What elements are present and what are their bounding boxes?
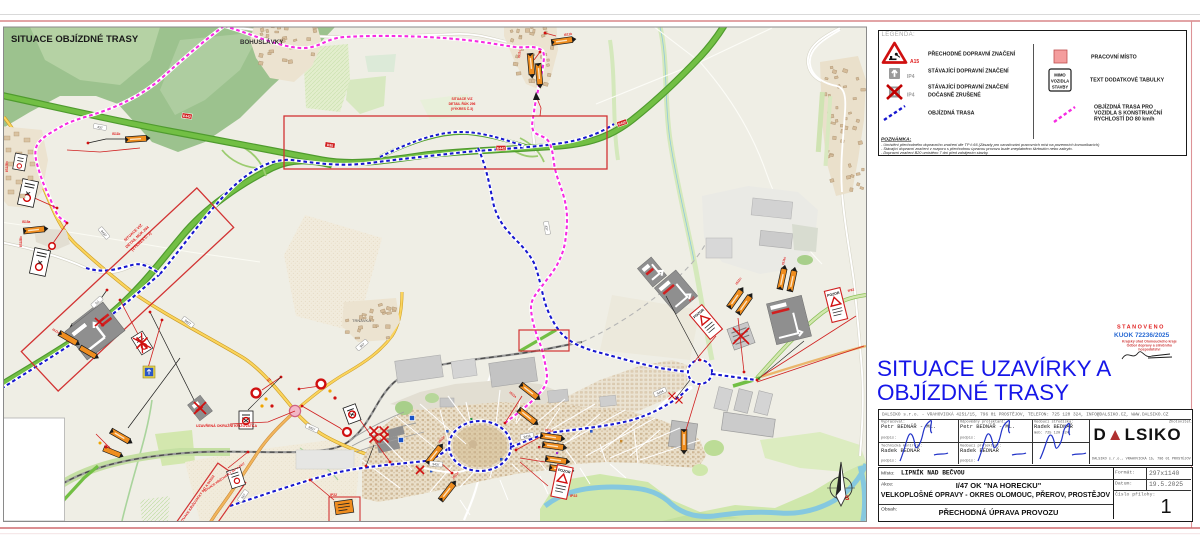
svg-text:TRNÁVKA: TRNÁVKA bbox=[352, 318, 371, 323]
svg-text:IP22: IP22 bbox=[570, 494, 577, 498]
svg-text:9437: 9437 bbox=[432, 462, 440, 467]
svg-text:IP4: IP4 bbox=[907, 74, 915, 80]
svg-text:S: S bbox=[845, 495, 850, 502]
svg-text:MIMO: MIMO bbox=[1054, 72, 1066, 77]
svg-text:(VÝKRES Č.3): (VÝKRES Č.3) bbox=[451, 106, 473, 111]
svg-text:SITUACE VIZ: SITUACE VIZ bbox=[451, 97, 472, 101]
svg-text:IP22: IP22 bbox=[330, 493, 337, 497]
svg-text:IS15a: IS15a bbox=[22, 220, 31, 224]
svg-text:DETAIL ŘÚK 296: DETAIL ŘÚK 296 bbox=[449, 101, 476, 106]
svg-text:IS11b: IS11b bbox=[112, 132, 120, 136]
svg-text:IS15b: IS15b bbox=[18, 236, 23, 247]
svg-text:A15: A15 bbox=[910, 59, 919, 65]
svg-text:IP4: IP4 bbox=[907, 92, 915, 98]
svg-text:SITUACE OBJÍZDNÉ TRASY: SITUACE OBJÍZDNÉ TRASY bbox=[11, 34, 139, 45]
svg-text:E442: E442 bbox=[497, 146, 505, 150]
svg-text:BOHUSLÁVKY: BOHUSLÁVKY bbox=[240, 39, 284, 46]
svg-text:IS11c: IS11c bbox=[517, 49, 522, 58]
svg-text:STAVBY: STAVBY bbox=[1051, 84, 1068, 89]
svg-text:VOZIDLA: VOZIDLA bbox=[1050, 78, 1068, 83]
svg-text:UZAVŘENÁ OKRUŽNÍ KŘIŽOVATKA: UZAVŘENÁ OKRUŽNÍ KŘIŽOVATKA bbox=[196, 423, 257, 428]
